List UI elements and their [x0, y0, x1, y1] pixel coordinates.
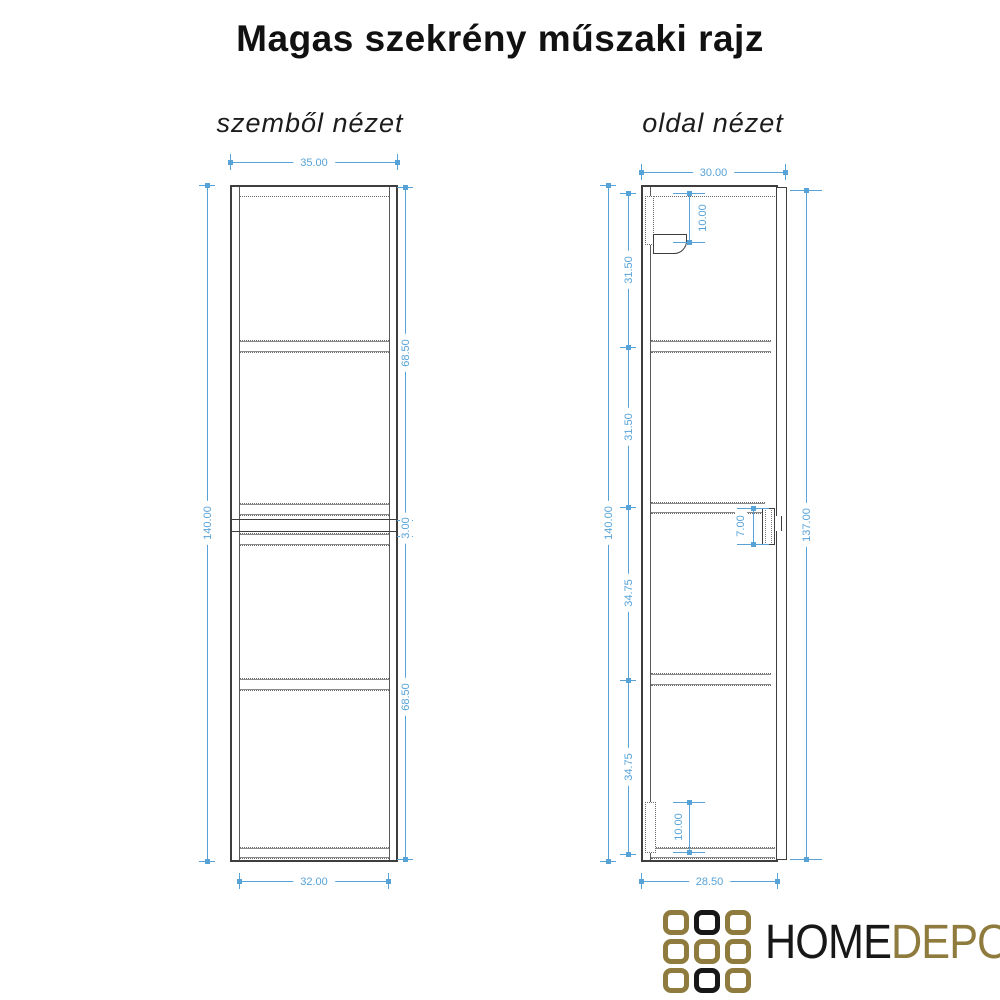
front-shelf-1: [240, 340, 389, 353]
dim-front-sections: 68.50 3.00 68.50: [397, 185, 413, 862]
dim-value: 28.50: [689, 876, 731, 888]
logo-wordmark: HOMEDEPO: [765, 915, 1000, 970]
dim-dot: [639, 170, 644, 175]
side-shelf-3: [651, 673, 771, 686]
front-left-wall-line: [239, 187, 240, 860]
technical-drawing-page: Magas szekrény műszaki rajz szemből néze…: [0, 0, 1000, 1000]
dim-mid-bracket: 7.00: [745, 508, 761, 545]
dim-dot: [205, 859, 210, 864]
dim-dot: [237, 879, 242, 884]
logo-grid-square-gold: [725, 968, 751, 993]
dim-dot: [804, 857, 809, 862]
dim-value: 140.00: [202, 501, 214, 545]
side-door-gap-notch: [774, 516, 782, 531]
dim-dot: [606, 183, 611, 188]
dim-dot: [751, 506, 756, 511]
dim-dot: [606, 859, 611, 864]
dim-dot: [626, 191, 631, 196]
front-shelf-4: [240, 678, 389, 691]
logo-grid-square-dark: [694, 910, 720, 935]
page-title: Magas szekrény műszaki rajz: [0, 18, 1000, 60]
side-back-wall-line: [650, 187, 651, 860]
dim-line: [753, 508, 754, 545]
dim-dot: [403, 185, 408, 190]
dim-front-bottom-width: 32.00: [239, 873, 389, 889]
logo-text-depo: DEPO: [891, 916, 1000, 969]
dim-side-bottom-depth: 28.50: [641, 873, 778, 889]
dim-dot: [775, 879, 780, 884]
dim-side-top-depth: 30.00: [641, 164, 786, 180]
dim-top-bracket: 10.00: [681, 193, 697, 243]
dim-dot: [403, 857, 408, 862]
dim-dot: [626, 345, 631, 350]
dim-value: 34.75: [623, 574, 635, 612]
dim-value: 34.75: [623, 748, 635, 786]
dim-dot: [804, 188, 809, 193]
logo-grid-square-gold: [663, 910, 689, 935]
dim-side-front-height: 137.00: [798, 190, 814, 860]
logo-grid-square-dark: [694, 968, 720, 993]
side-top-panel-line: [651, 196, 775, 197]
dim-value: 68.50: [400, 678, 412, 716]
logo-text-home: HOME: [765, 916, 891, 969]
front-bottom-panel: [240, 847, 389, 859]
logo-grid-square-gold: [663, 939, 689, 964]
side-view-label: oldal nézet: [573, 108, 853, 139]
dim-value: 3.00: [400, 512, 412, 543]
logo-grid-square-gold: [725, 910, 751, 935]
side-shelf-1: [651, 340, 771, 353]
dim-dot: [783, 170, 788, 175]
front-view-label: szemből nézet: [170, 108, 450, 139]
dim-value: 31.50: [623, 251, 635, 289]
dim-dot: [626, 852, 631, 857]
dim-dot: [395, 160, 400, 165]
front-mid-divider-top: [230, 519, 398, 520]
dim-line: [689, 193, 690, 243]
dim-bottom-bracket: 10.00: [681, 802, 697, 853]
side-bottom-panel: [651, 847, 775, 859]
dim-value: 137.00: [801, 503, 813, 547]
mid-bracket: [762, 508, 775, 545]
dim-front-height: 140.00: [199, 185, 215, 862]
dim-value: 10.00: [673, 808, 685, 846]
dim-value: 7.00: [735, 510, 747, 541]
dim-side-segments: 31.50 31.50 34.75 34.75: [620, 185, 636, 862]
dim-dot: [639, 879, 644, 884]
logo-grid-square-gold: [725, 939, 751, 964]
dim-dot: [687, 191, 692, 196]
dim-dot: [386, 879, 391, 884]
logo-grid-square-gold: [694, 939, 720, 964]
dim-value: 30.00: [693, 167, 735, 179]
logo-grid-square-gold: [663, 968, 689, 993]
front-shelf-3: [240, 533, 389, 546]
dim-dot: [228, 160, 233, 165]
dim-value: 68.50: [400, 334, 412, 372]
bottom-bracket-plate: [645, 802, 656, 853]
dim-dot: [626, 505, 631, 510]
front-cabinet-outline: [230, 185, 398, 862]
dim-front-top-width: 35.00: [230, 154, 398, 170]
dim-dot: [687, 240, 692, 245]
front-top-panel-line: [240, 196, 389, 197]
logo-grid: [663, 910, 751, 993]
dim-side-height: 140.00: [600, 185, 616, 862]
front-mid-divider-bottom: [230, 531, 398, 532]
dim-dot: [205, 183, 210, 188]
dim-line: [689, 802, 690, 853]
dim-value: 32.00: [293, 876, 335, 888]
dim-value: 35.00: [293, 157, 335, 169]
front-shelf-2: [240, 503, 389, 516]
dim-dot: [626, 678, 631, 683]
dim-value: 31.50: [623, 408, 635, 446]
dim-dot: [751, 542, 756, 547]
dim-value: 10.00: [697, 199, 709, 237]
front-right-wall-line: [389, 187, 390, 860]
dim-value: 140.00: [603, 501, 615, 545]
dim-dot: [687, 800, 692, 805]
dim-dot: [687, 850, 692, 855]
